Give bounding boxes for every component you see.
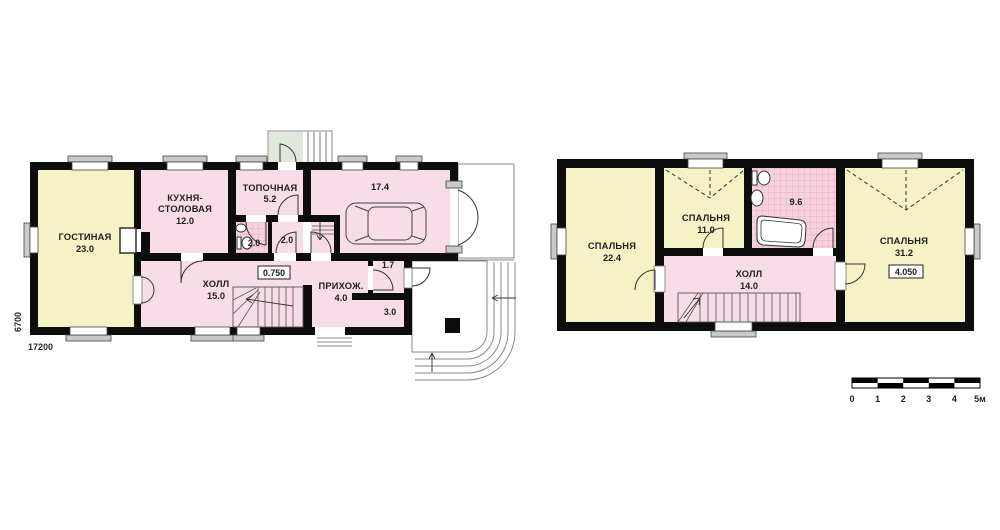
sink xyxy=(751,190,763,206)
label-bedroom-left-area: 22.4 xyxy=(603,253,622,263)
label-kitchen-area: 12.0 xyxy=(176,216,194,226)
terrace-column xyxy=(445,318,460,333)
entry-porch xyxy=(268,131,332,163)
label-kitchen-2: СТОЛОВАЯ xyxy=(158,204,212,214)
scale-tick-2: 2 xyxy=(901,394,906,404)
scale-tick-3: 3 xyxy=(926,394,931,404)
label-boiler: ТОПОЧНАЯ xyxy=(243,183,298,193)
toilet-bowl xyxy=(758,171,770,185)
label-bathroom2-area: 9.6 xyxy=(790,197,803,207)
toilet-tank xyxy=(752,171,757,185)
elevation-mark-second-floor: 4.050 xyxy=(889,265,923,278)
label-closet-area: 2.0 xyxy=(281,235,293,245)
label-garage-area: 17.4 xyxy=(371,182,390,192)
label-entry: ПРИХОЖ. xyxy=(318,281,363,291)
scale-tick-0: 0 xyxy=(849,394,854,404)
label-hall1: ХОЛЛ xyxy=(203,279,230,289)
terrace-step-arrow-left xyxy=(492,295,516,301)
label-tambour-area: 3.0 xyxy=(384,307,396,317)
label-pantry-area: 1.7 xyxy=(382,260,394,270)
label-bedroom-middle-area: 11.0 xyxy=(697,225,715,235)
terrace-door xyxy=(412,268,430,286)
terrace-floor xyxy=(412,261,487,352)
label-bedroom-right-area: 31.2 xyxy=(895,248,913,258)
second-floor-plan: СПАЛЬНЯ 22.4 СПАЛЬНЯ 11.0 9.6 ХОЛЛ 14.0 … xyxy=(551,153,980,337)
label-bedroom-right: СПАЛЬНЯ xyxy=(880,236,928,246)
porch-floor xyxy=(269,132,303,162)
first-floor-plan: ГОСТИНАЯ 23.0 КУХНЯ- СТОЛОВАЯ 12.0 ТОПОЧ… xyxy=(13,131,516,380)
terrace xyxy=(412,261,516,380)
label-bedroom-middle: СПАЛЬНЯ xyxy=(682,213,730,223)
svg-text:0.750: 0.750 xyxy=(263,268,285,278)
label-hall2-area: 14.0 xyxy=(740,281,758,291)
label-living-area: 23.0 xyxy=(76,244,94,254)
elevation-mark-first-floor: 0.750 xyxy=(258,266,290,279)
carport-annex xyxy=(458,164,514,260)
floor-plan-page: ГОСТИНАЯ 23.0 КУХНЯ- СТОЛОВАЯ 12.0 ТОПОЧ… xyxy=(0,0,1000,530)
label-living: ГОСТИНАЯ xyxy=(59,232,112,242)
dimension-width: 17200 xyxy=(28,342,53,352)
scale-tick-4: 4 xyxy=(952,394,957,404)
terrace-step-arrow-up xyxy=(429,353,435,372)
floor-plans-drawing: ГОСТИНАЯ 23.0 КУХНЯ- СТОЛОВАЯ 12.0 ТОПОЧ… xyxy=(0,0,1000,530)
scale-tick-5: 5м xyxy=(974,394,986,404)
entrance-steps xyxy=(317,338,352,346)
dimension-height: 6700 xyxy=(13,312,23,332)
label-entry-area: 4.0 xyxy=(335,293,348,303)
label-kitchen-1: КУХНЯ- xyxy=(167,193,203,203)
svg-text:4.050: 4.050 xyxy=(895,267,917,277)
garage-gate-doors xyxy=(458,190,478,245)
scale-bar: 0 1 2 3 4 5м xyxy=(849,378,986,404)
label-boiler-area: 5.2 xyxy=(264,194,277,204)
label-hall1-area: 15.0 xyxy=(207,291,225,301)
label-bedroom-left: СПАЛЬНЯ xyxy=(588,241,636,251)
scale-tick-1: 1 xyxy=(875,394,880,404)
label-bathroom1-area: 2.0 xyxy=(248,238,260,248)
cased-opening-living-kitchen xyxy=(120,228,136,253)
label-hall2: ХОЛЛ xyxy=(736,269,763,279)
